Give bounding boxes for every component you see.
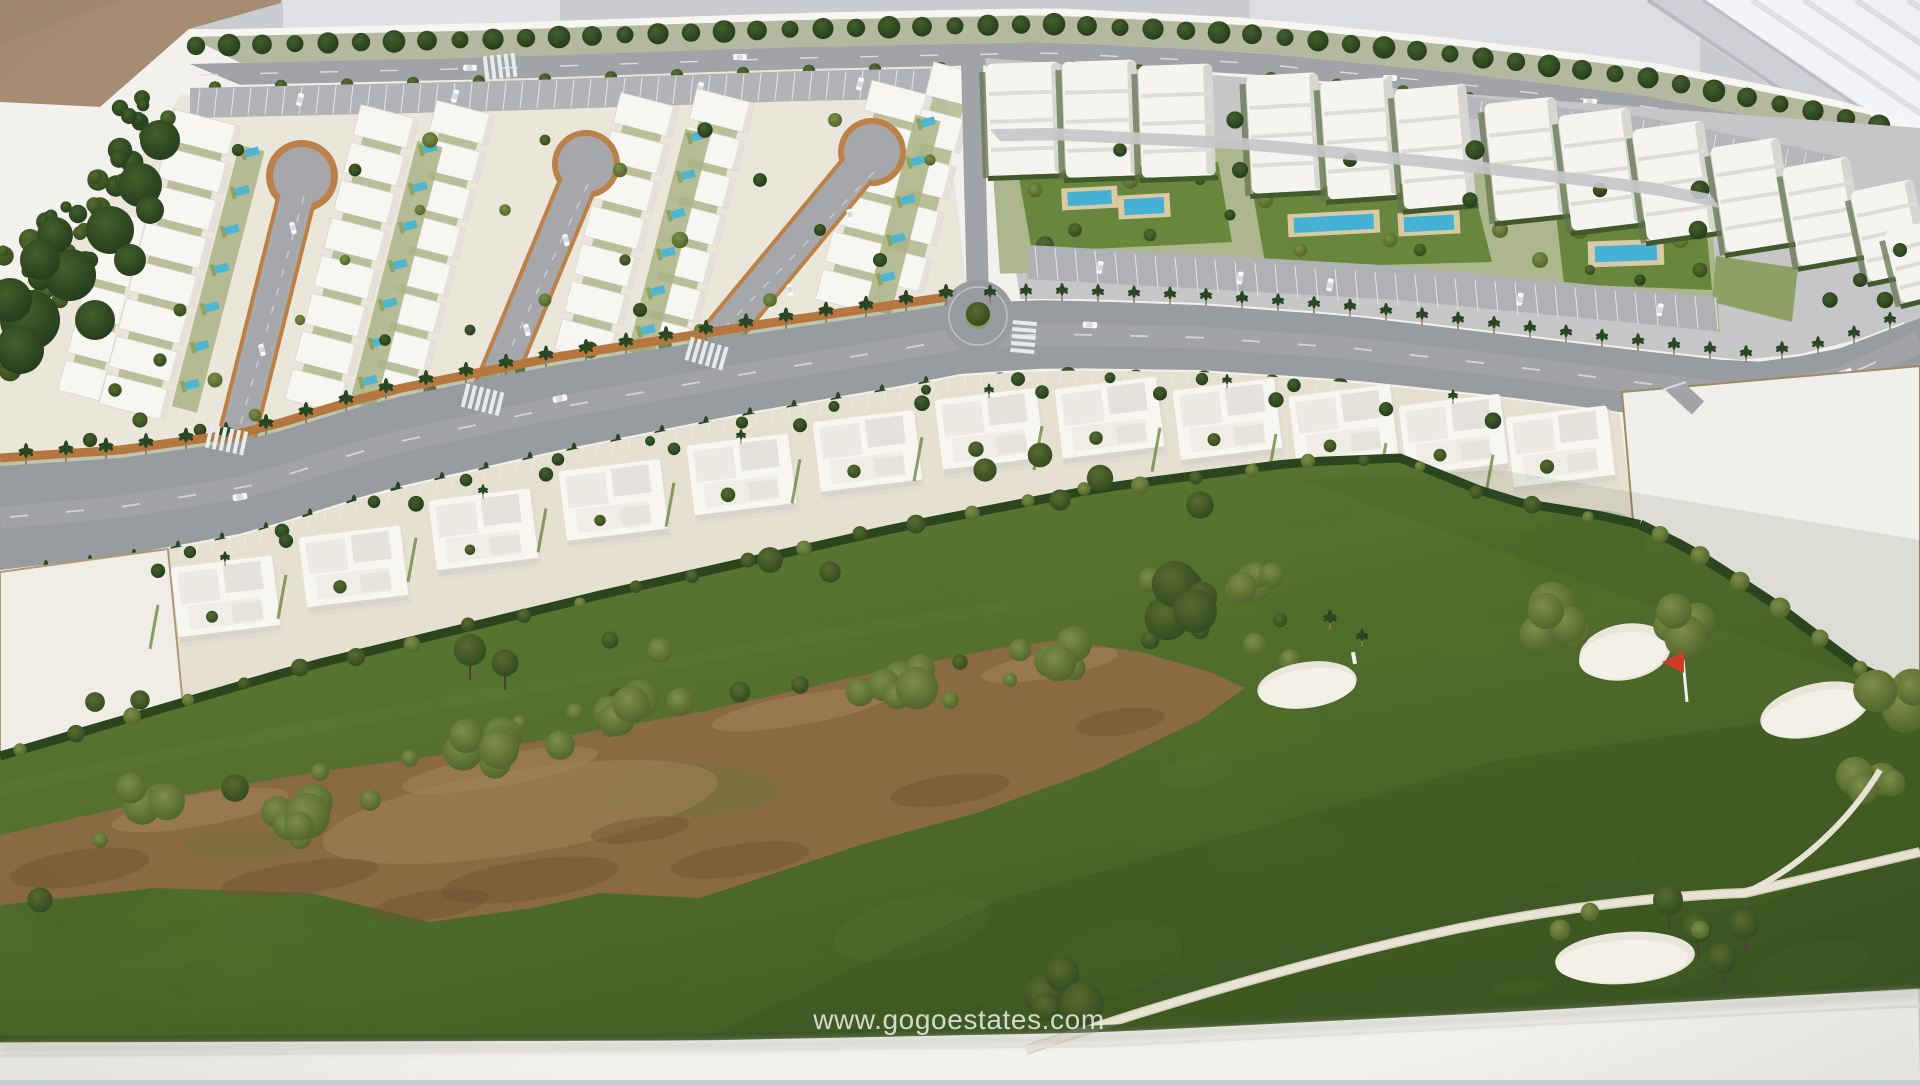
svg-text:www.gogoestates.com: www.gogoestates.com	[812, 1004, 1105, 1035]
